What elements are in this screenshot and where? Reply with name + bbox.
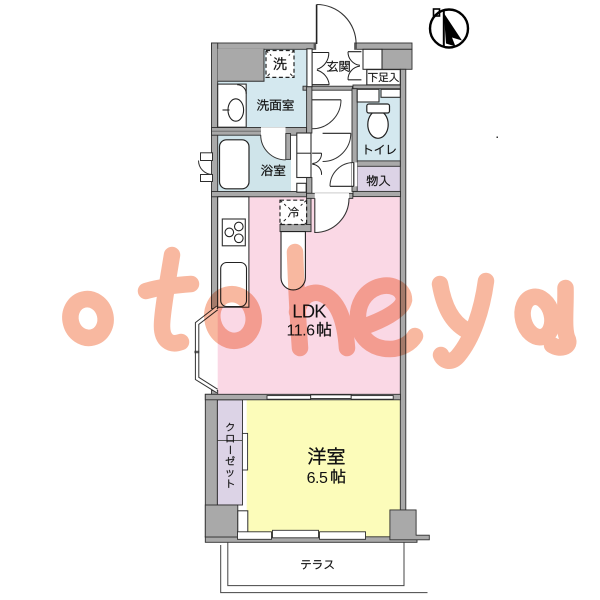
svg-text:6.5: 6.5: [307, 470, 328, 487]
